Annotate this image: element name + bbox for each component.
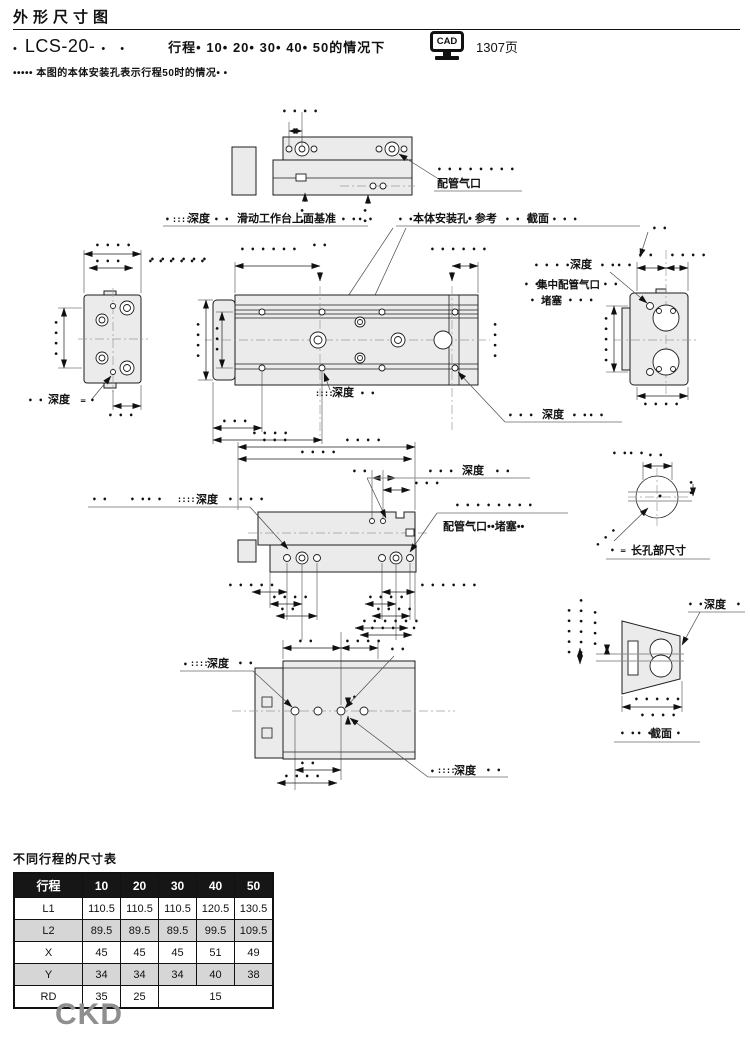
table-cell: 34 — [121, 964, 159, 986]
dim-mask: • • • • • — [634, 695, 682, 704]
table-cell: 99.5 — [197, 920, 235, 942]
view-cross-section: • • • • • • • • • • • • • • • • • 深度 • •… — [564, 597, 745, 742]
depth-label: 深度 — [570, 257, 593, 271]
dim-mask: • • — [686, 480, 695, 497]
row-label: L1 — [14, 898, 83, 920]
dim-mask: • • • — [212, 326, 221, 353]
cad-base — [435, 56, 459, 60]
dim-mask: • • • • — [490, 322, 499, 360]
table-cell: 110.5 — [121, 898, 159, 920]
section-caption: 截面 — [650, 726, 672, 740]
dim-mask: • • • — [414, 479, 441, 488]
depth-label: 深度 — [188, 211, 211, 225]
dim-mask: • • • • • • — [362, 617, 420, 626]
col-header-10: 10 — [83, 873, 121, 898]
table-row-X: X 45 45 45 51 49 — [14, 942, 273, 964]
table-cell: 45 — [159, 942, 197, 964]
dim-mask: • • — [298, 637, 315, 646]
row-label: X — [14, 942, 83, 964]
dim-mask: • • • — [108, 411, 135, 420]
dim-mask: • • • — [262, 436, 289, 445]
dim-mask: • •• • — [600, 261, 633, 270]
model-row: • LCS-20- • • 行程• 10• 20• 30• 40• 50的情况下 — [13, 36, 385, 57]
dim-mask: • • — [360, 389, 377, 398]
dim-mask: • • • — [222, 417, 249, 426]
piping-port-label: 配管气口 — [437, 176, 481, 190]
dim-mask: • •• • — [620, 729, 653, 738]
col-header-50: 50 — [235, 873, 274, 898]
table-row-L2: L2 89.5 89.5 89.5 99.5 109.5 — [14, 920, 273, 942]
col-header-stroke: 行程 — [14, 873, 83, 898]
dim-mask: • • — [238, 659, 255, 668]
model-bullet: • — [13, 43, 17, 55]
ckd-logo: CKD — [55, 998, 123, 1032]
row-label: L2 — [14, 920, 83, 942]
table-row-Y: Y 34 34 34 40 38 — [14, 964, 273, 986]
dim-mask: • • — [280, 605, 297, 614]
table-row-L1: L1 110.5 110.5 110.5 120.5 130.5 — [14, 898, 273, 920]
dim-mask: • • • — [568, 296, 595, 305]
detail-slot-hole: • •• • • • • • • • • • = 长孔部尺寸 — [593, 449, 710, 559]
cad-reference[interactable]: CAD 1307页 — [430, 31, 518, 61]
col-header-20: 20 — [121, 873, 159, 898]
page-title: 外形尺寸图 — [13, 6, 113, 27]
view-lower-side: • • • • • • • • • • • • • • • • • • • ••… — [88, 436, 568, 640]
dim-mask: = — [620, 546, 628, 555]
table-cell: 89.5 — [159, 920, 197, 942]
header-note: ••••• 本图的本体安装孔表示行程50时的情况• • — [13, 64, 228, 79]
cad-icon-label: CAD — [430, 31, 464, 52]
col-header-30: 30 — [159, 873, 197, 898]
dim-mask: • • • • • • • • — [455, 501, 534, 510]
dim-mask: • • • • — [345, 436, 383, 445]
dim-mask: • • • — [95, 257, 122, 266]
dimension-table: 行程 10 20 30 40 50 L1 110.5 110.5 110.5 1… — [13, 872, 274, 1009]
slot-dim-label: 长孔部尺寸 — [631, 543, 686, 557]
dim-mask: • • — [486, 766, 503, 775]
dim-mask: :::: — [178, 495, 196, 504]
dim-mask: • • — [214, 215, 231, 224]
depth-label: 深度 — [48, 392, 71, 406]
dim-mask: • • • • — [193, 322, 202, 360]
dim-mask: • • — [390, 645, 407, 654]
dim-mask: • • • • — [282, 107, 320, 116]
slide-table-ref-label: 滑动工作台上面基准 — [237, 211, 336, 225]
dim-mask: • • • • — [590, 610, 599, 648]
table-title: 不同行程的尺寸表 — [13, 850, 274, 867]
view-bottom: • • • • • • • • • • • • • • • • • • • • … — [180, 617, 508, 790]
dim-mask: • • • — [552, 215, 579, 224]
dim-mask: • • • • • • — [420, 581, 478, 590]
dim-mask: • • • • — [272, 593, 310, 602]
stroke-variants-text: 行程• 10• 20• 30• 40• 50的情况下 — [168, 37, 385, 56]
dim-mask: • — [183, 660, 189, 669]
dim-mask: • — [165, 215, 171, 224]
dim-mask: • • — [352, 467, 369, 476]
dim-mask: • • • • — [284, 772, 322, 781]
dim-mask: • • — [688, 600, 705, 609]
dim-mask: • • — [300, 759, 317, 768]
dim-mask: • — [430, 767, 436, 776]
dim-mask: • •• • — [612, 449, 645, 458]
stroke-dimension-section: 不同行程的尺寸表 行程 10 20 30 40 50 L1 110.5 110.… — [13, 850, 274, 1009]
dim-mask: • • — [28, 396, 45, 405]
dim-mask: • •• • — [572, 411, 605, 420]
table-cell: 109.5 — [235, 920, 274, 942]
dim-mask: • • • • — [228, 495, 266, 504]
depth-label: 深度 — [207, 656, 230, 670]
plug-label: 堵塞 — [541, 294, 562, 307]
dim-mask: • • — [648, 451, 665, 460]
table-cell: 89.5 — [83, 920, 121, 942]
depth-label: 深度 — [542, 407, 565, 421]
table-cell: 34 — [159, 964, 197, 986]
dim-mask: • • • • — [376, 605, 414, 614]
depth-label: 深度 — [454, 763, 477, 777]
row-label: Y — [14, 964, 83, 986]
table-header-row: 行程 10 20 30 40 50 — [14, 873, 273, 898]
dim-mask: • • • — [428, 467, 455, 476]
catalog-page: 外形尺寸图 • LCS-20- • • 行程• 10• 20• 30• 40• … — [0, 0, 750, 1037]
central-port-label: 集中配管气口 — [536, 278, 600, 291]
table-row-RD: RD 35 25 15 — [14, 986, 273, 1009]
dim-mask: • • • • — [51, 320, 60, 358]
table-cell: 45 — [121, 942, 159, 964]
table-cell: 89.5 — [121, 920, 159, 942]
section-label: 截面 — [527, 211, 549, 225]
table-cell: 110.5 — [159, 898, 197, 920]
view-top-side: • • • • • • • • • • • • • • • • 配管气口 — [232, 107, 522, 225]
dim-mask: • • • • • — [601, 316, 610, 364]
table-cell: 38 — [235, 964, 274, 986]
model-suffix-dots: • • — [101, 43, 130, 55]
table-cell: 120.5 — [197, 898, 235, 920]
dim-mask: • • • • • • — [150, 255, 208, 264]
table-cell: 130.5 — [235, 898, 274, 920]
dim-mask: • • — [603, 280, 620, 289]
dim-mask: • — [530, 296, 536, 305]
dim-mask: • — [736, 600, 742, 609]
body-mount-ref-label: 本体安装孔• 参考 — [413, 211, 497, 225]
dim-mask: • • — [638, 251, 655, 260]
depth-label: 深度 — [704, 597, 727, 611]
table-cell: 40 — [197, 964, 235, 986]
depth-label: 深度 — [196, 492, 219, 506]
dim-mask: • • • • — [300, 448, 338, 457]
view-plan: • • • • • • • • • • • • • • • • • • • • … — [193, 241, 622, 444]
model-number: LCS-20- — [25, 36, 96, 57]
cad-page-number: 1307页 — [476, 37, 518, 56]
table-cell: 110.5 — [83, 898, 121, 920]
dim-mask: • •• • — [341, 215, 374, 224]
cad-monitor-icon: CAD — [430, 31, 470, 61]
port-plug-label: 配管气口••堵塞•• — [443, 519, 525, 533]
view-right-end: • • • • • • • • • • • • • • • 深度 • •• • … — [524, 250, 708, 409]
dim-mask: • • • • • — [564, 608, 573, 656]
dim-mask: • • — [312, 241, 329, 250]
dim-mask: • • • • — [95, 241, 133, 250]
dim-mask: • • • • — [640, 711, 678, 720]
table-cell: 25 — [121, 986, 159, 1009]
dim-mask: • — [676, 729, 682, 738]
depth-label: 深度 — [462, 463, 485, 477]
dim-mask: • • • • • • — [240, 245, 298, 254]
title-rule — [13, 29, 740, 30]
col-header-40: 40 — [197, 873, 235, 898]
dim-mask: • • • • — [345, 637, 383, 646]
dim-mask: • • — [495, 467, 512, 476]
dim-mask: • • — [92, 495, 109, 504]
dim-mask: = — [80, 396, 88, 405]
table-cell-merged: 15 — [159, 986, 274, 1009]
table-cell: 51 — [197, 942, 235, 964]
depth-label: 深度 — [332, 385, 355, 399]
table-cell: 49 — [235, 942, 274, 964]
dim-mask: • • • • • • — [430, 245, 488, 254]
dim-mask: • • • • — [534, 261, 572, 270]
dim-mask: • • — [652, 224, 669, 233]
dim-mask: • • • — [508, 411, 535, 420]
table-cell: 34 — [83, 964, 121, 986]
dim-mask: • • • • — [643, 400, 681, 409]
dim-mask: • • • • • • • • — [437, 165, 516, 174]
view-left-end: • • • • • • • • • • • • • • • • • • • 深度… — [28, 241, 208, 420]
dim-mask: • •• • — [130, 495, 163, 504]
dim-mask: • — [610, 546, 616, 555]
table-cell: 45 — [83, 942, 121, 964]
dim-mask: • • • • • — [228, 581, 276, 590]
dim-mask: • • • • • • — [576, 598, 585, 656]
dim-mask: • • • • — [368, 593, 406, 602]
dim-mask: • • • • — [670, 251, 708, 260]
